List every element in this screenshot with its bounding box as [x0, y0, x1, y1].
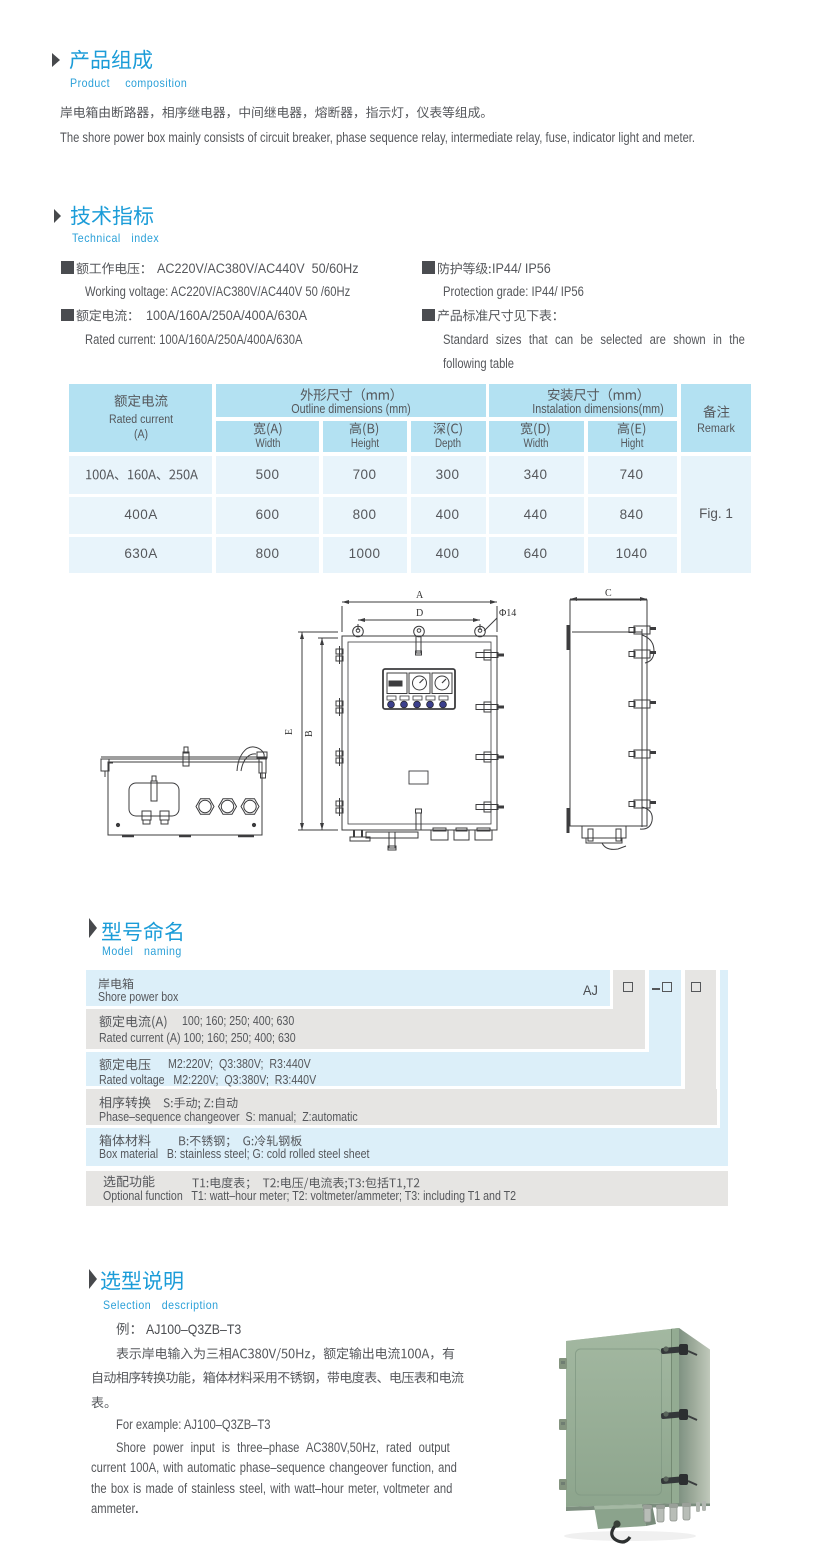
- svg-text:E: E: [284, 729, 295, 735]
- svg-text:C: C: [605, 588, 612, 599]
- svg-text:D: D: [416, 608, 423, 619]
- svg-text:B: B: [304, 730, 315, 737]
- svg-text:A: A: [416, 590, 424, 601]
- svg-text:Φ14: Φ14: [499, 608, 516, 619]
